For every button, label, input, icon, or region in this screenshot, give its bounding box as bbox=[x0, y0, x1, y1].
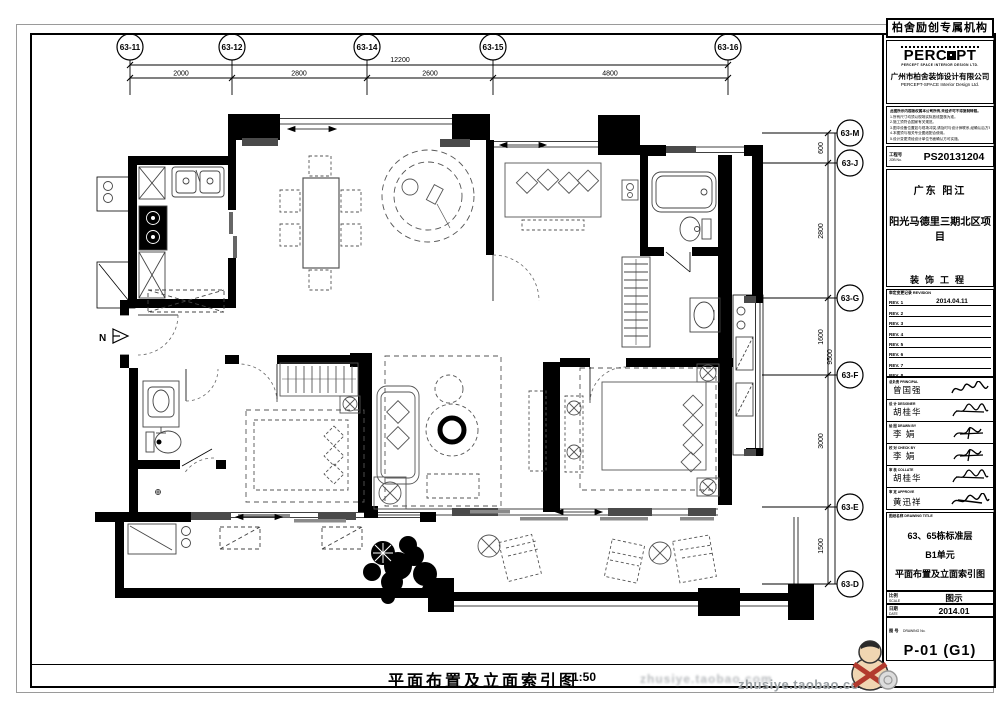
signature-row: 设 计 DESIGNER 胡桂华 bbox=[887, 400, 993, 422]
dim-overall-right: 9500 bbox=[827, 349, 834, 365]
equipment-bay bbox=[736, 307, 753, 416]
dim-overall-top: 12200 bbox=[390, 57, 410, 64]
date-value: 2014.01 bbox=[915, 606, 993, 616]
toilet-1 bbox=[680, 217, 711, 241]
company-name-cn: 广州市柏舍装饰设计有限公司 bbox=[887, 71, 993, 82]
revision-row: REV. 12014.04.11 bbox=[889, 296, 991, 306]
revision-row: REV. 6 bbox=[889, 348, 991, 358]
grid-label: 63-14 bbox=[357, 43, 378, 52]
general-notes: 此图所示内容版权属本公司所有,未经许可不得复制转载。 1.所有尺寸均须以现场实际… bbox=[886, 106, 994, 144]
grid-label: 63-11 bbox=[120, 43, 141, 52]
fan bbox=[649, 542, 671, 564]
watermark-mascot bbox=[846, 636, 898, 694]
signature-table: 总负责 PRINCIPAL 曾国强 设 计 DESIGNER 胡桂华 绘 图 D… bbox=[886, 377, 994, 510]
project-box: 广东 阳江 阳光马德里三期北区项目 装饰工程 bbox=[886, 169, 994, 287]
dim: 3000 bbox=[818, 433, 825, 449]
dining-area bbox=[280, 150, 474, 290]
north-label: N bbox=[99, 333, 106, 344]
drawing-number-box: 图 号 DRAWING No. P-01 (G1) bbox=[886, 617, 994, 661]
grid-label: 63-G bbox=[841, 294, 859, 303]
bathroom-1 bbox=[622, 172, 720, 347]
balcony-right bbox=[478, 534, 716, 583]
guest-bedroom bbox=[505, 163, 638, 230]
dim: 1600 bbox=[818, 329, 825, 345]
signature-mark bbox=[950, 469, 990, 485]
drawing-title-line: 63、65栋标准层 bbox=[889, 529, 991, 542]
revision-row: REV. 7 bbox=[889, 358, 991, 368]
bedroom-2 bbox=[246, 363, 364, 502]
project-type: 装饰工程 bbox=[887, 273, 993, 286]
dim: 4800 bbox=[602, 71, 618, 78]
sofa bbox=[377, 386, 419, 484]
vanity bbox=[690, 298, 720, 332]
scale-row: 比例SCALE 图示 bbox=[886, 591, 994, 604]
drawing-title-box: 图纸名称 DRAWING TITLE 63、65栋标准层 B1单元 平面布置及立… bbox=[886, 512, 994, 591]
grid-right: 63-M 63-J 63-G 63-F 63-E 63-D 600 2800 1… bbox=[762, 120, 863, 597]
sheet-scale: 1:50 bbox=[572, 670, 596, 684]
balcony-left bbox=[128, 524, 362, 554]
agency-header: 柏舍励创专属机构 bbox=[886, 18, 994, 38]
drawing-sheet: 63-11 63-12 63-14 63-15 63-16 12200 2000… bbox=[0, 0, 1000, 707]
grid-label: 63-D bbox=[841, 580, 859, 589]
drawing-title-line: 平面布置及立面索引图 bbox=[889, 567, 991, 580]
logo-tagline: PERCEPT SPACE INTERIOR DESIGN LTD. bbox=[887, 63, 993, 67]
living-room bbox=[374, 356, 546, 509]
dim: 2800 bbox=[818, 223, 825, 239]
revision-row: REV. 5 bbox=[889, 338, 991, 348]
signature-row: 审 核 COLLATE 胡桂华 bbox=[887, 466, 993, 488]
dim: 600 bbox=[818, 142, 825, 154]
job-number: PS20131204 bbox=[915, 151, 993, 163]
signature-row: 校 对 CHECK BY 李 娟 bbox=[887, 444, 993, 466]
revision-table: 审定变更记录 REVISION REV. 12014.04.11 REV. 2 … bbox=[886, 289, 994, 377]
signature-mark bbox=[950, 425, 990, 441]
signature-mark bbox=[950, 493, 990, 509]
fan bbox=[478, 535, 500, 557]
grid-top: 63-11 63-12 63-14 63-15 63-16 12200 2000… bbox=[117, 34, 741, 95]
logo-square-icon bbox=[947, 51, 956, 60]
revision-row: REV. 3 bbox=[889, 317, 991, 327]
north-arrow: N bbox=[99, 329, 128, 344]
grid-label: 63-12 bbox=[222, 43, 243, 52]
side-plant bbox=[374, 477, 406, 509]
drawing-title-line: B1单元 bbox=[889, 548, 991, 561]
drawing-number: P-01 (G1) bbox=[889, 643, 991, 659]
signature-mark bbox=[950, 381, 990, 397]
master-bedroom bbox=[565, 364, 719, 496]
grid-label: 63-J bbox=[842, 159, 858, 168]
signature-mark bbox=[950, 403, 990, 419]
agency-name: 柏舍励创专属机构 bbox=[892, 22, 988, 34]
scale-value: 图示 bbox=[915, 592, 993, 604]
date-row: 日期DATE 2014.01 bbox=[886, 604, 994, 617]
window-sill-hatch bbox=[191, 138, 756, 520]
company-name-en: PERCEPT-SPACE Interior Design Ltd. bbox=[887, 82, 993, 87]
project-name: 阳光马德里三期北区项目 bbox=[887, 213, 993, 243]
grid-label: 63-E bbox=[841, 503, 859, 512]
nightstand bbox=[697, 478, 719, 496]
signature-mark bbox=[950, 447, 990, 463]
dim: 2600 bbox=[422, 71, 438, 78]
signature-row: 总负责 PRINCIPAL 曾国强 bbox=[887, 378, 993, 400]
stove bbox=[139, 206, 167, 250]
dim: 1500 bbox=[818, 538, 825, 554]
percept-logo: PERCPT bbox=[887, 48, 993, 63]
company-logo-box: PERCPT PERCEPT SPACE INTERIOR DESIGN LTD… bbox=[886, 40, 994, 104]
bathroom-2 bbox=[143, 381, 181, 495]
signature-row: 绘 图 DRAWN BY 李 娟 bbox=[887, 422, 993, 444]
signature-row: 审 定 APPROVE 黄迅祥 bbox=[887, 488, 993, 510]
dim: 2000 bbox=[173, 71, 189, 78]
grid-label: 63-F bbox=[842, 371, 859, 380]
revision-row: REV. 4 bbox=[889, 327, 991, 337]
job-number-row: 工程号JOB No. PS20131204 bbox=[886, 146, 994, 167]
dim: 2800 bbox=[291, 71, 307, 78]
grid-label: 63-16 bbox=[718, 43, 739, 52]
grid-label: 63-15 bbox=[483, 43, 504, 52]
wardrobe-2 bbox=[280, 363, 358, 396]
revision-row: REV. 2 bbox=[889, 306, 991, 316]
kitchen bbox=[104, 167, 238, 312]
project-location: 广东 阳江 bbox=[887, 182, 993, 197]
doors bbox=[138, 252, 690, 474]
toilet-2 bbox=[146, 431, 181, 453]
floor-plan-drawing: 63-11 63-12 63-14 63-15 63-16 12200 2000… bbox=[0, 0, 1000, 707]
sheet-title: 平面布置及立面索引图 bbox=[388, 667, 578, 691]
coffee-table bbox=[426, 375, 478, 456]
grid-label: 63-M bbox=[841, 129, 860, 138]
corridor-wardrobe bbox=[622, 257, 650, 347]
